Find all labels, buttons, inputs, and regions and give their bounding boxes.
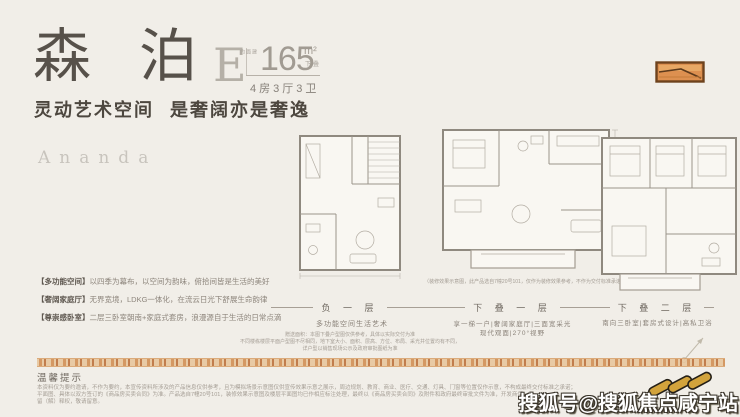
- plan2-name: 下 叠 一 层: [473, 301, 552, 314]
- area-tag: 下叠: [305, 59, 321, 68]
- feature-list: 【多功能空间】以四季为幕布，以空间为韵味，俯拾间皆是生活的美好 【奢阔家庭厅】无…: [37, 273, 237, 327]
- plan1-note-line: 不同楼栋楼层平面户型图不尽相同，地下室大小、面积、层高、方位、布局、采光井位置均…: [230, 339, 470, 346]
- slogan-part-1: 灵动艺术空间: [34, 100, 154, 120]
- room-spec: 4房3厅3卫: [250, 80, 319, 96]
- feature-tag: 【尊崇感卧室】: [37, 313, 90, 322]
- plan1-note-line: 详户型以销售现场公示及政府审批图纸为准: [230, 346, 470, 353]
- label-dash: [271, 307, 313, 308]
- brand-name: Ananda: [38, 148, 157, 168]
- title-char-2: 泊: [139, 22, 197, 90]
- slogan-part-2: 是奢阔亦是奢逸: [170, 100, 310, 120]
- feature-item: 【奢阔家庭厅】无界宽境，LDKG一体化，在流云日光下舒展生命韵律: [37, 291, 237, 309]
- slogan: 灵动艺术空间是奢阔亦是奢逸: [34, 96, 310, 122]
- area-unit: m²: [304, 45, 317, 57]
- promo-poster: 森泊 E 建面约 165 m² 下叠 4房3厅3卫 灵动艺术空间是奢阔亦是奢逸 …: [0, 0, 740, 417]
- plan2-subtitle-2: 现代观面|270°视野: [415, 327, 610, 337]
- feature-text: 以四季为幕布，以空间为韵味，俯拾间皆是生活的美好: [90, 277, 270, 286]
- feature-item: 【尊崇感卧室】二层三卧室朝南+家庭式套房，浪漫源自于生活的日常点滴: [37, 309, 237, 327]
- plan1-name: 负 一 层: [321, 301, 378, 314]
- floorplan-level2: [594, 126, 740, 302]
- spec-rule-line: [246, 75, 320, 76]
- ornament-border-strip: [37, 358, 725, 367]
- label-dash: [423, 307, 465, 308]
- unit-type-letter: E: [213, 38, 247, 92]
- tips-title: 温馨提示: [37, 370, 83, 384]
- label-dash: [704, 307, 714, 308]
- floorplan-level1: [433, 120, 619, 282]
- plan3-name: 下 叠 二 层: [618, 301, 697, 314]
- plan3-label: 下 叠 二 层: [592, 301, 722, 314]
- brand-seal-icon: [655, 61, 705, 83]
- title-char-1: 森: [33, 22, 91, 90]
- plan2-label: 下 叠 一 层: [415, 301, 610, 314]
- feature-tag: 【多功能空间】: [37, 277, 90, 286]
- page-title: 森泊: [33, 22, 197, 94]
- plan3-subtitle: 南向三卧室|套房式设计|高私卫浴: [575, 317, 740, 327]
- area-prefix-label: 建面约: [251, 49, 257, 55]
- feature-item: 【多功能空间】以四季为幕布，以空间为韵味，俯拾间皆是生活的美好: [37, 273, 237, 291]
- watermark-text: 搜狐号@搜狐焦点咸宁站: [518, 387, 738, 416]
- floorplan-level2-wrap: [594, 126, 740, 307]
- floorplan-basement: [280, 128, 420, 280]
- feature-tag: 【奢阔家庭厅】: [37, 295, 90, 304]
- feature-text: 无界宽境，LDKG一体化，在流云日光下舒展生命韵律: [90, 295, 268, 304]
- label-dash: [600, 307, 610, 308]
